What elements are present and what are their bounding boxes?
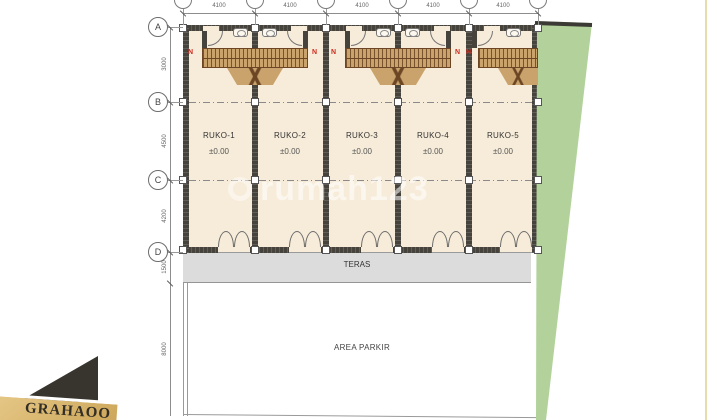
teras-label: TERAS [183, 260, 531, 269]
stair-core-unit-5 [472, 27, 538, 89]
stair-flight [345, 48, 451, 68]
column-marker [465, 24, 473, 32]
unit-name-ruko-3: RUKO-3 [330, 131, 394, 140]
door-leaf-icon [305, 231, 321, 247]
site-plan-canvas: N N N N N RUKO-1 ±0.00 RUKO-2 ±0.00 RUKO… [0, 0, 720, 420]
column-marker [534, 98, 542, 106]
top-dim-5: 4100 [491, 3, 515, 9]
grid-bubble-row-C: C [148, 170, 168, 190]
unit-name-ruko-1: RUKO-1 [187, 131, 251, 140]
north-label: N [466, 49, 471, 56]
top-dim-4: 4100 [421, 3, 445, 9]
door-leaf-icon [377, 231, 393, 247]
stair-winder [227, 68, 283, 85]
grid-extension [183, 9, 184, 25]
unit-level-ruko-2: ±0.00 [258, 147, 322, 156]
grid-row-label: C [155, 175, 162, 185]
top-dim-2: 4100 [278, 3, 302, 9]
stair-wall-stub [202, 31, 207, 48]
stair-wall-stub [472, 31, 477, 48]
door-arc-icon [478, 31, 493, 46]
unit-name-ruko-4: RUKO-4 [401, 131, 465, 140]
top-dimension-line [183, 13, 538, 14]
grid-extension [538, 9, 539, 25]
toilet-fixture-icon [376, 28, 391, 37]
stair-flight [478, 48, 538, 68]
column-marker [394, 98, 402, 106]
grid-bubble-row-A: A [148, 17, 168, 37]
grid-extension [326, 9, 327, 25]
door-leaf-icon [516, 231, 532, 247]
grid-bubble-row-B: B [148, 92, 168, 112]
front-door-unit-5 [500, 231, 532, 247]
door-arc-icon [287, 31, 302, 46]
column-marker [322, 24, 330, 32]
toilet-fixture-icon [233, 28, 248, 37]
grid-row-label: A [155, 22, 161, 32]
unit-level-ruko-1: ±0.00 [187, 147, 251, 156]
front-door-unit-2 [289, 231, 321, 247]
unit-name-ruko-5: RUKO-5 [471, 131, 535, 140]
unit-level-ruko-3: ±0.00 [330, 147, 394, 156]
north-label: N [312, 49, 317, 56]
door-arc-icon [208, 31, 223, 46]
column-marker [251, 24, 259, 32]
stair-core-units-1-2 [195, 27, 315, 89]
left-dimension-line [170, 27, 171, 416]
front-door-opening [289, 247, 321, 253]
door-arc-icon [351, 31, 366, 46]
door-leaf-icon [234, 231, 250, 247]
top-dim-1: 4100 [207, 3, 231, 9]
column-marker [251, 176, 259, 184]
column-marker [394, 24, 402, 32]
stair-flight [202, 48, 308, 68]
north-label: N [331, 49, 336, 56]
stair-winder [498, 68, 538, 85]
grid-extension [398, 9, 399, 25]
toilet-fixture-icon [405, 28, 420, 37]
column-marker [322, 246, 330, 254]
stair-winder [370, 68, 426, 85]
front-door-unit-4 [432, 231, 464, 247]
front-door-opening [218, 247, 250, 253]
door-leaf-icon [218, 231, 234, 247]
column-marker [465, 246, 473, 254]
toilet-fixture-icon [506, 28, 521, 37]
unit-level-ruko-5: ±0.00 [471, 147, 535, 156]
grid-bubble-row-D: D [148, 242, 168, 262]
grid-extension [255, 9, 256, 25]
unit-name-ruko-2: RUKO-2 [258, 131, 322, 140]
column-marker [534, 176, 542, 184]
grid-row-label: D [155, 247, 162, 257]
left-dim-parking: 8000 [162, 334, 168, 364]
column-marker [322, 176, 330, 184]
column-marker [465, 98, 473, 106]
front-door-unit-3 [361, 231, 393, 247]
stair-wall-stub [446, 31, 451, 48]
grid-row-label: B [155, 97, 161, 107]
grid-extension [469, 9, 470, 25]
door-leaf-icon [289, 231, 305, 247]
stair-wall-stub [303, 31, 308, 48]
front-door-opening [432, 247, 464, 253]
front-door-opening [361, 247, 393, 253]
north-label: N [188, 49, 193, 56]
column-marker [534, 24, 542, 32]
column-marker [322, 98, 330, 106]
column-marker [251, 246, 259, 254]
column-marker [465, 176, 473, 184]
column-marker [179, 24, 187, 32]
stair-wall-stub [345, 31, 350, 48]
front-door-opening [500, 247, 532, 253]
door-leaf-icon [361, 231, 377, 247]
door-leaf-icon [448, 231, 464, 247]
unit-level-ruko-4: ±0.00 [401, 147, 465, 156]
door-leaf-icon [500, 231, 516, 247]
toilet-fixture-icon [262, 28, 277, 37]
stair-core-units-3-4 [338, 27, 458, 89]
north-label: N [455, 49, 460, 56]
brand-name: GRAHAOO [24, 400, 111, 420]
column-marker [394, 176, 402, 184]
door-arc-icon [430, 31, 445, 46]
left-dim-C-D: 4200 [162, 201, 168, 231]
front-door-unit-1 [218, 231, 250, 247]
top-dim-3: 4100 [350, 3, 374, 9]
column-marker [394, 246, 402, 254]
left-dim-B-C: 4500 [162, 126, 168, 156]
left-dim-A-B: 3000 [162, 49, 168, 79]
door-leaf-icon [432, 231, 448, 247]
column-marker [251, 98, 259, 106]
column-marker [534, 246, 542, 254]
